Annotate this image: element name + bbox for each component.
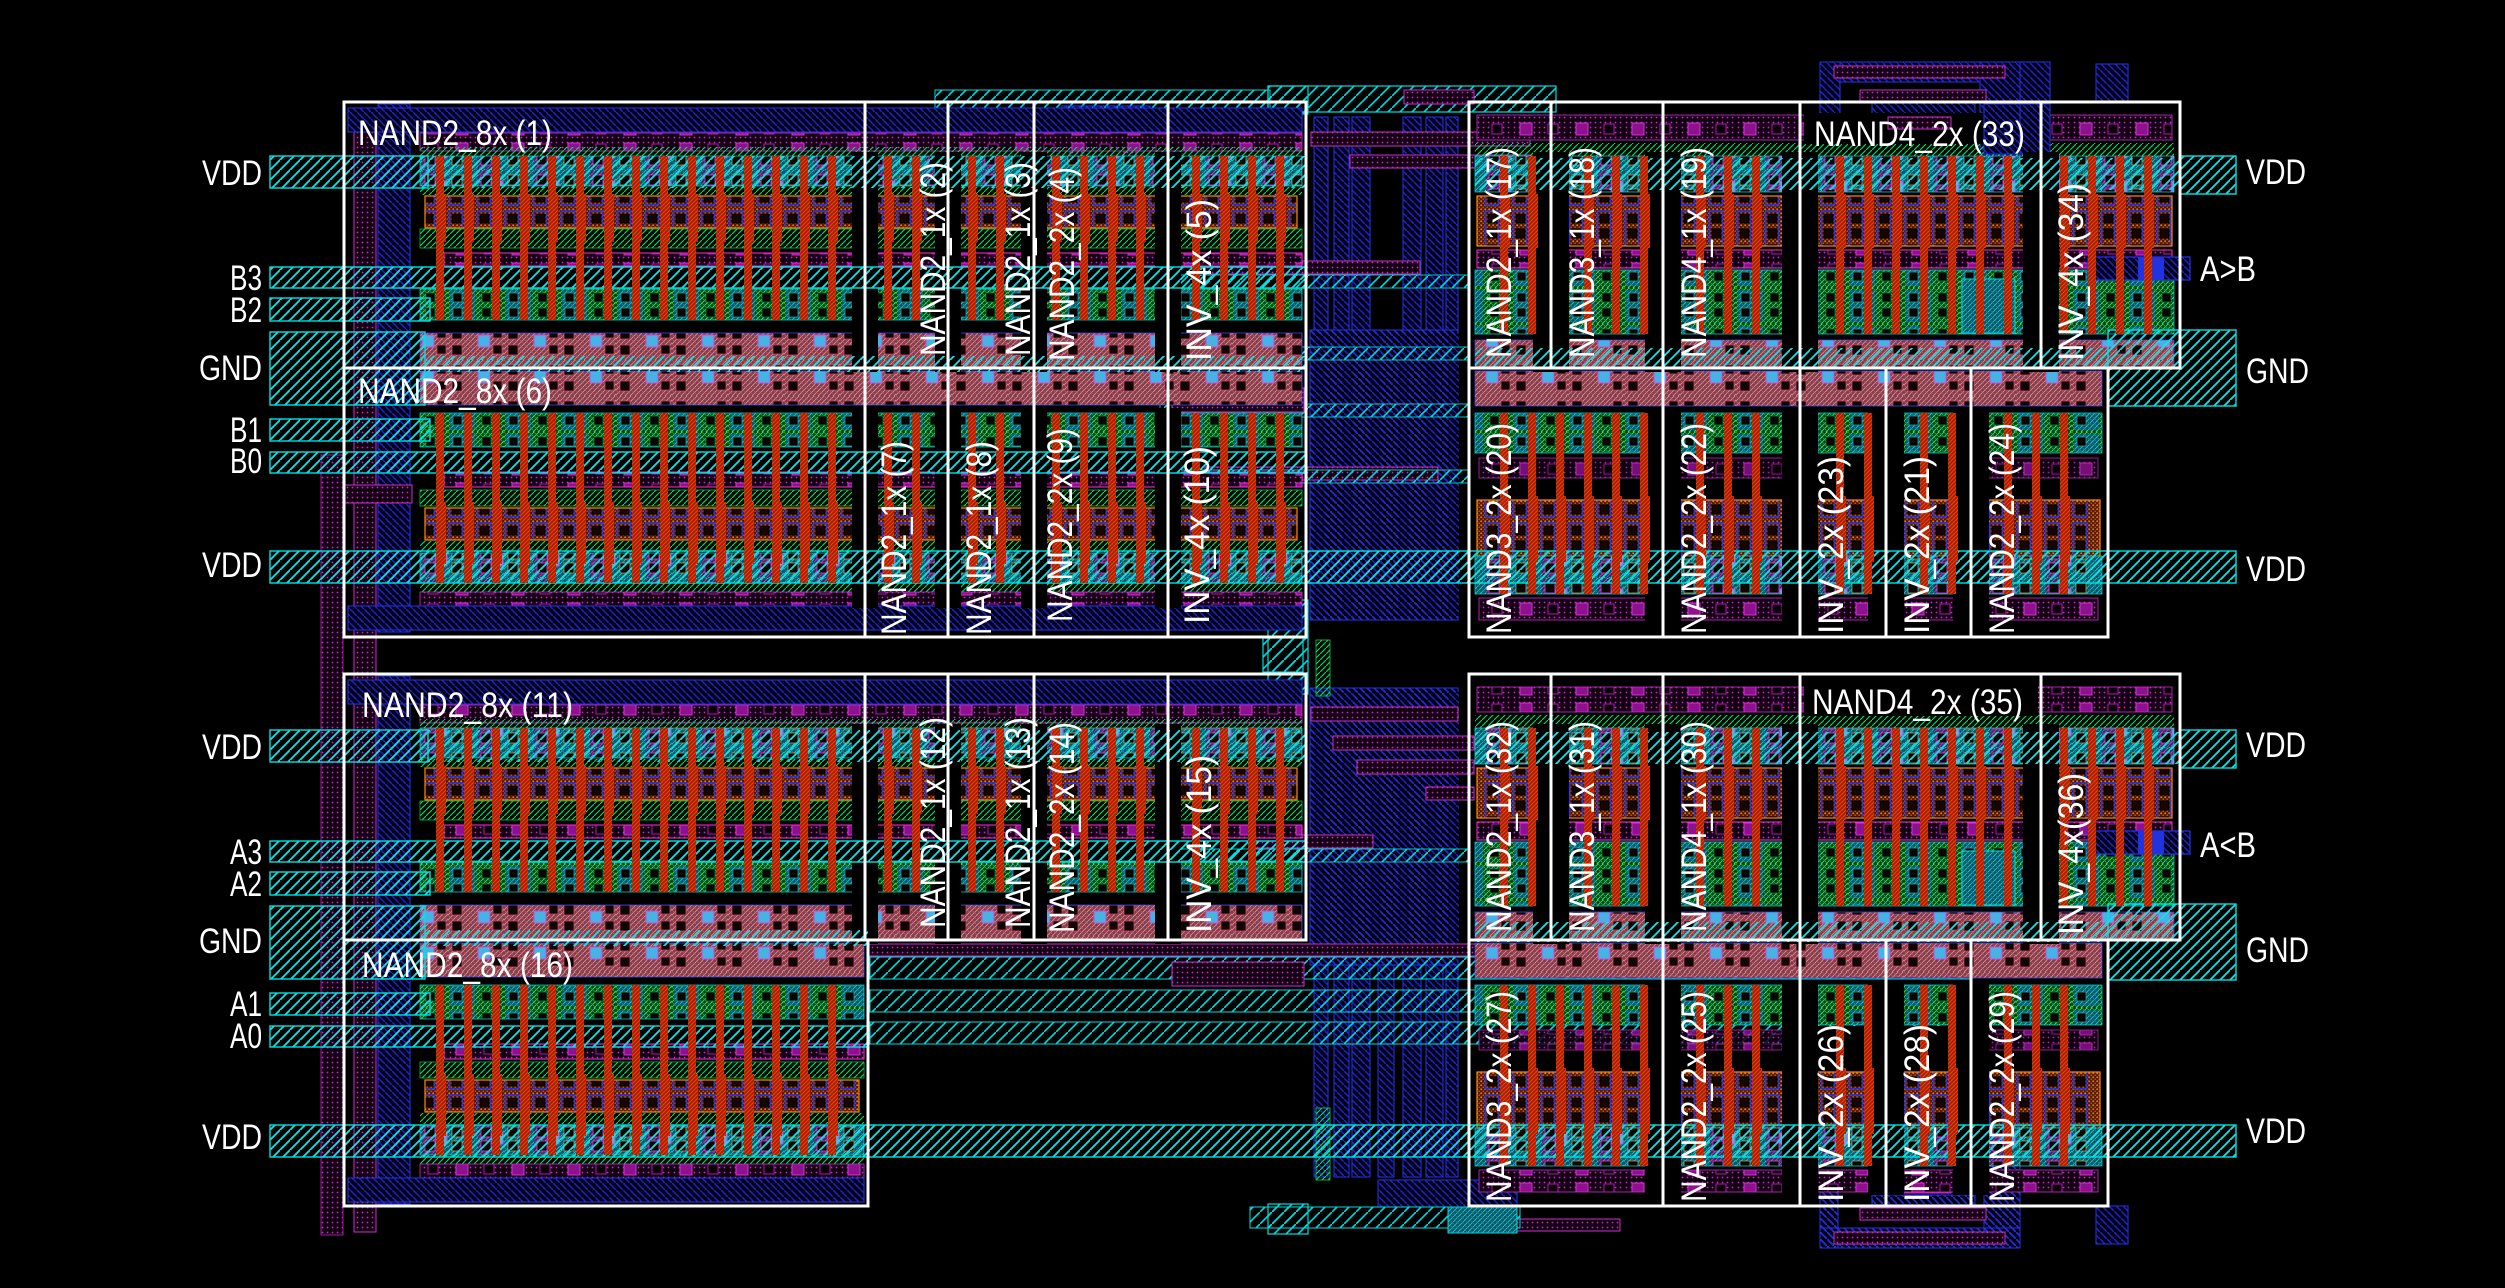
svg-text:NAND3_1x (18): NAND3_1x (18) <box>1563 147 1602 358</box>
svg-text:NAND2_1x (7): NAND2_1x (7) <box>875 441 914 635</box>
svg-text:NAND2_2x (9): NAND2_2x (9) <box>1041 428 1080 622</box>
svg-text:VDD: VDD <box>202 728 262 767</box>
svg-text:A>B: A>B <box>2200 250 2256 289</box>
svg-text:INV_4x (15): INV_4x (15) <box>1180 755 1219 933</box>
svg-text:NAND2_1x (2): NAND2_1x (2) <box>914 162 953 356</box>
svg-text:NAND2_2x (24): NAND2_2x (24) <box>1983 423 2022 634</box>
svg-text:NAND4_1x (19): NAND4_1x (19) <box>1675 147 1714 358</box>
svg-text:VDD: VDD <box>2246 726 2306 765</box>
svg-text:VDD: VDD <box>2246 1112 2306 1151</box>
svg-text:NAND2_1x (32): NAND2_1x (32) <box>1480 721 1519 932</box>
svg-text:A0: A0 <box>230 1017 262 1056</box>
svg-text:INV_4x (10): INV_4x (10) <box>1178 446 1217 624</box>
svg-text:NAND2_2x (25): NAND2_2x (25) <box>1675 991 1714 1202</box>
svg-text:VDD: VDD <box>2246 153 2306 192</box>
svg-text:NAND3_2x (27): NAND3_2x (27) <box>1480 991 1519 1202</box>
svg-text:NAND4_1x (30): NAND4_1x (30) <box>1675 721 1714 932</box>
svg-text:VDD: VDD <box>202 1118 262 1157</box>
svg-text:NAND2_8x (6): NAND2_8x (6) <box>358 372 552 411</box>
svg-text:NAND2_8x (1): NAND2_8x (1) <box>358 114 552 153</box>
svg-text:VDD: VDD <box>202 546 262 585</box>
svg-text:B2: B2 <box>230 291 262 330</box>
svg-text:A<B: A<B <box>2200 826 2256 865</box>
svg-text:INV_4x (34): INV_4x (34) <box>2052 183 2091 361</box>
svg-text:NAND2_1x (17): NAND2_1x (17) <box>1480 147 1519 358</box>
svg-text:GND: GND <box>199 349 262 388</box>
svg-text:VDD: VDD <box>202 154 262 193</box>
svg-text:NAND2_2x (14): NAND2_2x (14) <box>1043 722 1082 933</box>
svg-text:A2: A2 <box>230 865 262 904</box>
svg-text:NAND2_1x (13): NAND2_1x (13) <box>999 717 1038 928</box>
svg-text:NAND2_1x (8): NAND2_1x (8) <box>960 441 999 635</box>
svg-text:GND: GND <box>2246 352 2309 391</box>
svg-text:NAND2_8x (11): NAND2_8x (11) <box>362 686 573 725</box>
svg-text:NAND3_1x (31): NAND3_1x (31) <box>1563 721 1602 932</box>
svg-text:INV_2x (26): INV_2x (26) <box>1812 1024 1851 1202</box>
svg-text:NAND4_2x (33): NAND4_2x (33) <box>1814 115 2025 154</box>
svg-text:VDD: VDD <box>2246 550 2306 589</box>
svg-text:NAND4_2x (35): NAND4_2x (35) <box>1812 683 2023 722</box>
svg-text:GND: GND <box>2246 931 2309 970</box>
svg-text:NAND2_2x (4): NAND2_2x (4) <box>1043 167 1082 361</box>
svg-text:INV_2x (21): INV_2x (21) <box>1898 456 1937 634</box>
svg-text:INV_2x (23): INV_2x (23) <box>1812 456 1851 634</box>
svg-text:NAND2_1x (12): NAND2_1x (12) <box>914 717 953 928</box>
svg-text:NAND2_1x (3): NAND2_1x (3) <box>999 162 1038 356</box>
svg-text:INV_2x (28): INV_2x (28) <box>1898 1024 1937 1202</box>
svg-text:NAND3_2x (20): NAND3_2x (20) <box>1480 423 1519 634</box>
svg-text:INV_4x(36): INV_4x(36) <box>2052 773 2091 935</box>
svg-text:NAND2_8x (16): NAND2_8x (16) <box>362 946 573 985</box>
svg-text:B0: B0 <box>230 442 262 481</box>
svg-text:NAND2_2x (29): NAND2_2x (29) <box>1983 991 2022 1202</box>
svg-text:GND: GND <box>199 922 262 961</box>
svg-text:NAND2_2x (22): NAND2_2x (22) <box>1675 423 1714 634</box>
svg-text:INV_4x (5): INV_4x (5) <box>1180 199 1219 361</box>
